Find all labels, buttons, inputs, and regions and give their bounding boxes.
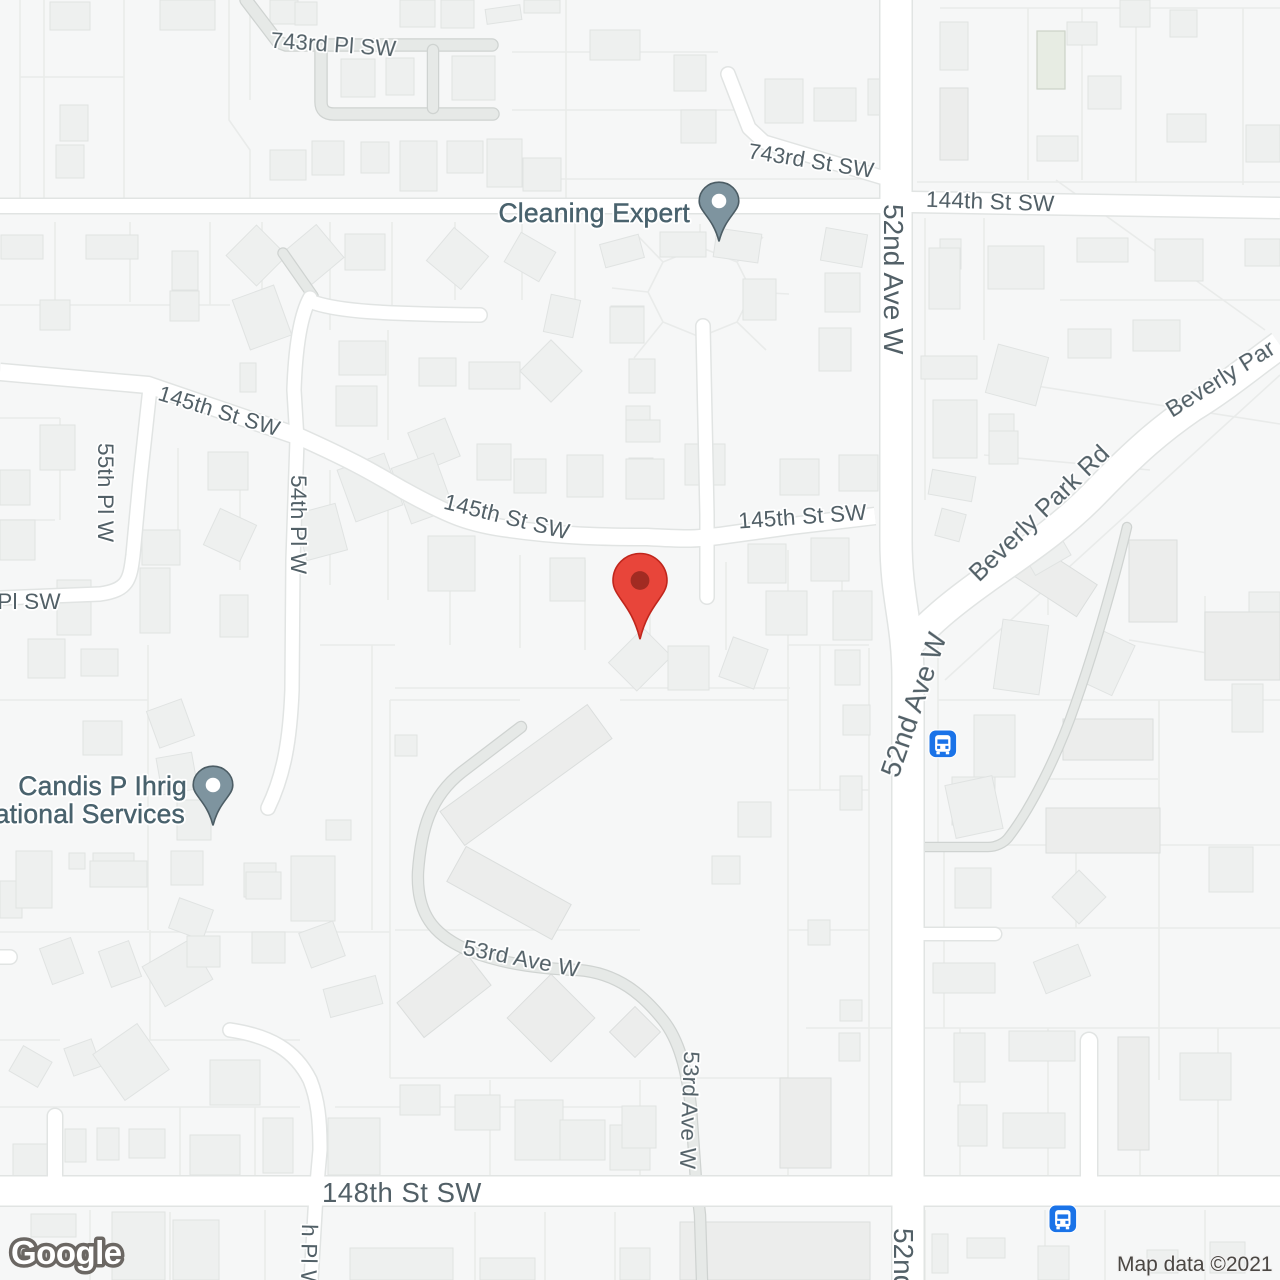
svg-text:52nd Ave W: 52nd Ave W [878, 204, 909, 355]
svg-text:Map data ©2021: Map data ©2021 [1117, 1253, 1273, 1276]
svg-text:54th Pl W: 54th Pl W [286, 475, 311, 575]
svg-text:Cleaning Expert: Cleaning Expert [498, 198, 690, 228]
svg-text:Google: Google [11, 1234, 122, 1271]
svg-text:Candis P Ihrig: Candis P Ihrig [18, 771, 187, 801]
svg-text:53rd Ave W: 53rd Ave W [675, 1051, 704, 1170]
svg-text:144th St SW: 144th St SW [926, 187, 1056, 216]
svg-text:148th St SW: 148th St SW [322, 1177, 482, 1208]
svg-text:Pl SW: Pl SW [0, 589, 61, 614]
svg-text:h Pl W: h Pl W [296, 1224, 322, 1280]
svg-text:55th Pl W: 55th Pl W [93, 443, 118, 543]
svg-text:52nd Av: 52nd Av [888, 1228, 919, 1280]
svg-text:ational Services: ational Services [0, 799, 185, 829]
